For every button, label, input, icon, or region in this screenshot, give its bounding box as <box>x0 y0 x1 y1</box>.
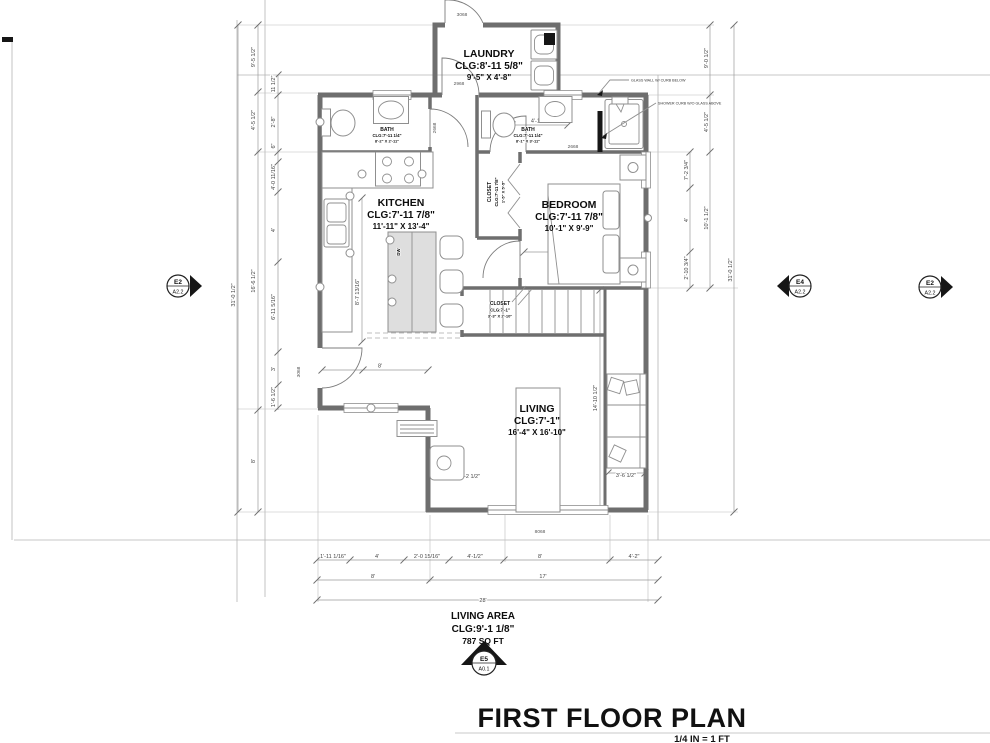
toilet1-bowl <box>331 110 355 136</box>
door-top <box>445 0 483 23</box>
marker-left-top: E2 <box>174 279 182 286</box>
room-label-kitchen: KITCHEN CLG:7'-11 7/8" 11'-11" X 13'-4" <box>367 197 435 231</box>
fixtures-laundry <box>531 30 557 90</box>
equipment-unit <box>430 446 464 480</box>
summary-block: LIVING AREA CLG:9'-1 1/8" 787 SQ FT E5 A… <box>451 611 515 675</box>
room-label-bath2: BATH CLG:7'-11 1/4" 8'-1" X 3'-11" <box>513 127 542 144</box>
dim-right-inner-1: 4' <box>684 218 690 222</box>
leader-glass-wall <box>599 80 629 93</box>
fixtures-living <box>397 374 646 512</box>
door-bedroom <box>483 241 520 278</box>
bath1-clg: CLG:7'-11 1/4" <box>372 133 401 138</box>
marker-right-outer-bottom: A2.2 <box>925 291 936 297</box>
room-label-closet2: CLOSET CLG:7'-1" 3'-3" X 2'-10" <box>488 301 512 319</box>
closet1-name: CLOSET <box>487 182 493 202</box>
closet2-name: CLOSET <box>490 301 510 307</box>
dim-left-outer: 31'-0 1/2" <box>231 283 237 306</box>
living-name: LIVING <box>519 403 554 415</box>
dim-left-mid-1: 4'-5 1/2" <box>251 110 257 130</box>
room-label-laundry: LAUNDRY CLG:8'-11 5/8" 9'-5" X 4'-8" <box>455 48 523 82</box>
sheet-title: FIRST FLOOR PLAN <box>478 703 747 733</box>
bath2-dims: 8'-1" X 3'-11" <box>516 139 540 144</box>
dim-left-mid-3: 8' <box>251 459 257 463</box>
floor-plan-sheet: 31'-0 1/2" 9'-5 1/2" 4'-5 1/2" 16'-6 1/2… <box>0 0 990 743</box>
room-label-closet1: CLOSET CLG:7'-11 7/8" 1'-5" X 5'-5" <box>487 177 506 206</box>
dim-bottom1-3: 4'-1/2" <box>467 554 483 560</box>
bath2-clg: CLG:7'-11 1/4" <box>513 133 542 138</box>
annotation-glass-wall: GLASS WALL W/ CURB BELOW <box>631 79 686 83</box>
closet1-dims: 1'-5" X 5'-5" <box>501 181 506 203</box>
island-outlet-1 <box>386 236 394 244</box>
dim-left-inner-0: 11 1/2" <box>271 76 277 93</box>
dim-left-inner-6: 3' <box>271 367 277 371</box>
title-block: FIRST FLOOR PLAN 1/4 IN = 1 FT <box>455 703 990 743</box>
shower-head <box>612 97 628 104</box>
dim-bottom1-0: 1'-11 1/16" <box>320 554 346 560</box>
dim-bottom2-1: 17' <box>539 574 546 580</box>
dishwasher-label: DW <box>396 247 401 255</box>
outlet-tag-bath1 <box>316 118 324 126</box>
tag-laundry-door: 2968 <box>454 81 465 87</box>
kitchen-sink <box>324 199 349 247</box>
pillow-2 <box>603 235 619 273</box>
elevation-marker-bottom: E5 A0.1 <box>461 641 507 675</box>
outlet-tag-4 <box>358 170 366 178</box>
dim-right-mid-0: 9'-0 1/2" <box>704 48 710 68</box>
fixtures-kitchen: DW <box>316 152 463 332</box>
marker-right-inner-bottom: A2.2 <box>795 290 806 296</box>
room-label-bedroom: BEDROOM CLG:7'-11 7/8" 10'-1" X 9'-9" <box>535 199 603 233</box>
dim-left-inner-5: 6'-11 5/16" <box>271 294 277 320</box>
laundry-clg: CLG:8'-11 5/8" <box>455 61 523 72</box>
dim-hall: 8' <box>378 364 382 370</box>
outlet-tag-bedroom <box>645 215 652 222</box>
sink2-vanity <box>539 97 572 123</box>
laundry-name: LAUNDRY <box>464 48 515 60</box>
pillow-1 <box>603 191 619 229</box>
dim-sofa-w: 3'-6 1/2" <box>616 473 636 479</box>
bedroom-clg: CLG:7'-11 7/8" <box>535 212 603 223</box>
dim-bottom1-1: 4' <box>375 554 379 560</box>
dim-right-mid-2: 10'-1 1/2" <box>704 206 710 229</box>
outlet-tag-3 <box>316 283 324 291</box>
tag-living-window: 8068 <box>535 529 546 535</box>
fixtures-bath1 <box>316 97 409 137</box>
dim-left-inner-4: 4' <box>271 228 277 232</box>
tag-bath1-door: 2668 <box>432 122 438 133</box>
living-area-label: LIVING AREA <box>451 611 515 622</box>
outlet-tag-5 <box>418 170 426 178</box>
dim-right-outer: 31'-0 1/2" <box>728 258 734 281</box>
dimension-chains: 31'-0 1/2" 9'-5 1/2" 4'-5 1/2" 16'-6 1/2… <box>231 22 738 605</box>
dim-bottom1-4: 8' <box>538 554 542 560</box>
dim-bottom1-5: 4'-2" <box>629 554 640 560</box>
room-label-bath1: BATH CLG:7'-11 1/4" 8'-2" X 2'-11" <box>372 127 401 144</box>
elevation-marker-left: E2 A2.2 <box>167 275 202 297</box>
tag-entry-door: 3068 <box>296 366 302 377</box>
elevation-marker-right-outer: E2 A2.2 <box>919 276 953 298</box>
closet2-clg: CLG:7'-1" <box>490 308 510 313</box>
kitchen-clg: CLG:7'-11 7/8" <box>367 210 435 221</box>
living-clg: CLG:7'-1" <box>514 416 560 427</box>
dim-left-inner-7: 1'-6 1/2" <box>271 387 277 407</box>
lamp-2 <box>628 265 638 275</box>
dim-right-inner-0: 7'-2 3/4" <box>684 160 690 180</box>
door-entry <box>322 348 362 388</box>
bifold-closet1 <box>508 164 520 228</box>
island-outlet-2 <box>388 275 396 283</box>
dim-left-inner-2: 6" <box>271 143 277 148</box>
dim-right-inner-2: 2'-10 3/4" <box>684 256 690 279</box>
marker-bottom-bottom: A0.1 <box>479 667 490 673</box>
kitchen-name: KITCHEN <box>378 197 425 209</box>
island-outlet-3 <box>388 298 396 306</box>
dim-left-inner-1: 2'-8" <box>271 116 277 127</box>
equipment-panel <box>397 421 437 437</box>
arrow-left-icon <box>777 275 789 297</box>
outlet-tag-1 <box>346 192 354 200</box>
elevation-marker-right-inner: E4 A2.2 <box>777 275 811 297</box>
dim-left-inner-3: 4'-0 11/16" <box>271 164 277 190</box>
bedroom-name: BEDROOM <box>542 199 597 211</box>
marker-left-bottom: A2.2 <box>173 290 184 296</box>
tag-bath2-door: 2668 <box>568 144 579 150</box>
fixtures-bath2 <box>482 97 644 153</box>
bath1-dims: 8'-2" X 2'-11" <box>375 139 399 144</box>
range <box>376 152 421 186</box>
page-artifact <box>2 37 13 42</box>
shower-pan <box>605 100 643 149</box>
toilet2-tank <box>482 111 491 138</box>
marker-right-outer-top: E2 <box>926 280 934 287</box>
annotation-shower-curb: SHOWER CURB W/O GLASS ABOVE <box>658 102 722 106</box>
living-dims: 16'-4" X 16'-10" <box>508 428 566 437</box>
closet1-clg: CLG:7'-11 7/8" <box>494 177 499 206</box>
dim-kitchen-v: 8'-7 13/16" <box>355 279 361 305</box>
arrow-right-icon <box>941 276 953 298</box>
dim-sofa-h: 14'-10 1/2" <box>593 385 599 411</box>
dim-bottom1-2: 2'-0 15/16" <box>414 554 440 560</box>
dim-bottom3: 28' <box>479 598 486 604</box>
living-area-clg: CLG:9'-1 1/8" <box>452 624 515 635</box>
dim-right-mid-1: 4'-5 1/2" <box>704 112 710 132</box>
shower-glass-wall <box>598 111 603 152</box>
toilet2-bowl <box>493 113 515 137</box>
floor-plan-drawing: 31'-0 1/2" 9'-5 1/2" 4'-5 1/2" 16'-6 1/2… <box>0 0 990 743</box>
outlet-tag-2 <box>346 249 354 257</box>
bedroom-dims: 10'-1" X 9'-9" <box>545 224 594 233</box>
stool-3 <box>440 304 463 327</box>
washer-panel <box>544 33 555 45</box>
window-tag-circle <box>367 404 375 412</box>
closet2-dims: 3'-3" X 2'-10" <box>488 314 512 319</box>
dim-left-mid-0: 9'-5 1/2" <box>251 47 257 67</box>
tag-top-door: 3068 <box>457 12 468 18</box>
kitchen-dims: 11'-11" X 13'-4" <box>373 222 430 231</box>
laundry-dims: 9'-5" X 4'-8" <box>467 73 512 82</box>
lamp-1 <box>628 163 638 173</box>
dimension-ticks <box>235 22 738 604</box>
dim-bottom2-0: 8' <box>371 574 375 580</box>
marker-bottom-top: E5 <box>480 656 488 663</box>
ceiling-break-lines <box>367 333 462 338</box>
sheet-scale: 1/4 IN = 1 FT <box>674 734 730 743</box>
arrow-right-icon <box>190 275 202 297</box>
dim-left-mid-2: 16'-6 1/2" <box>251 269 257 292</box>
marker-right-inner-top: E4 <box>796 279 804 286</box>
stool-1 <box>440 236 463 259</box>
stool-2 <box>440 270 463 293</box>
